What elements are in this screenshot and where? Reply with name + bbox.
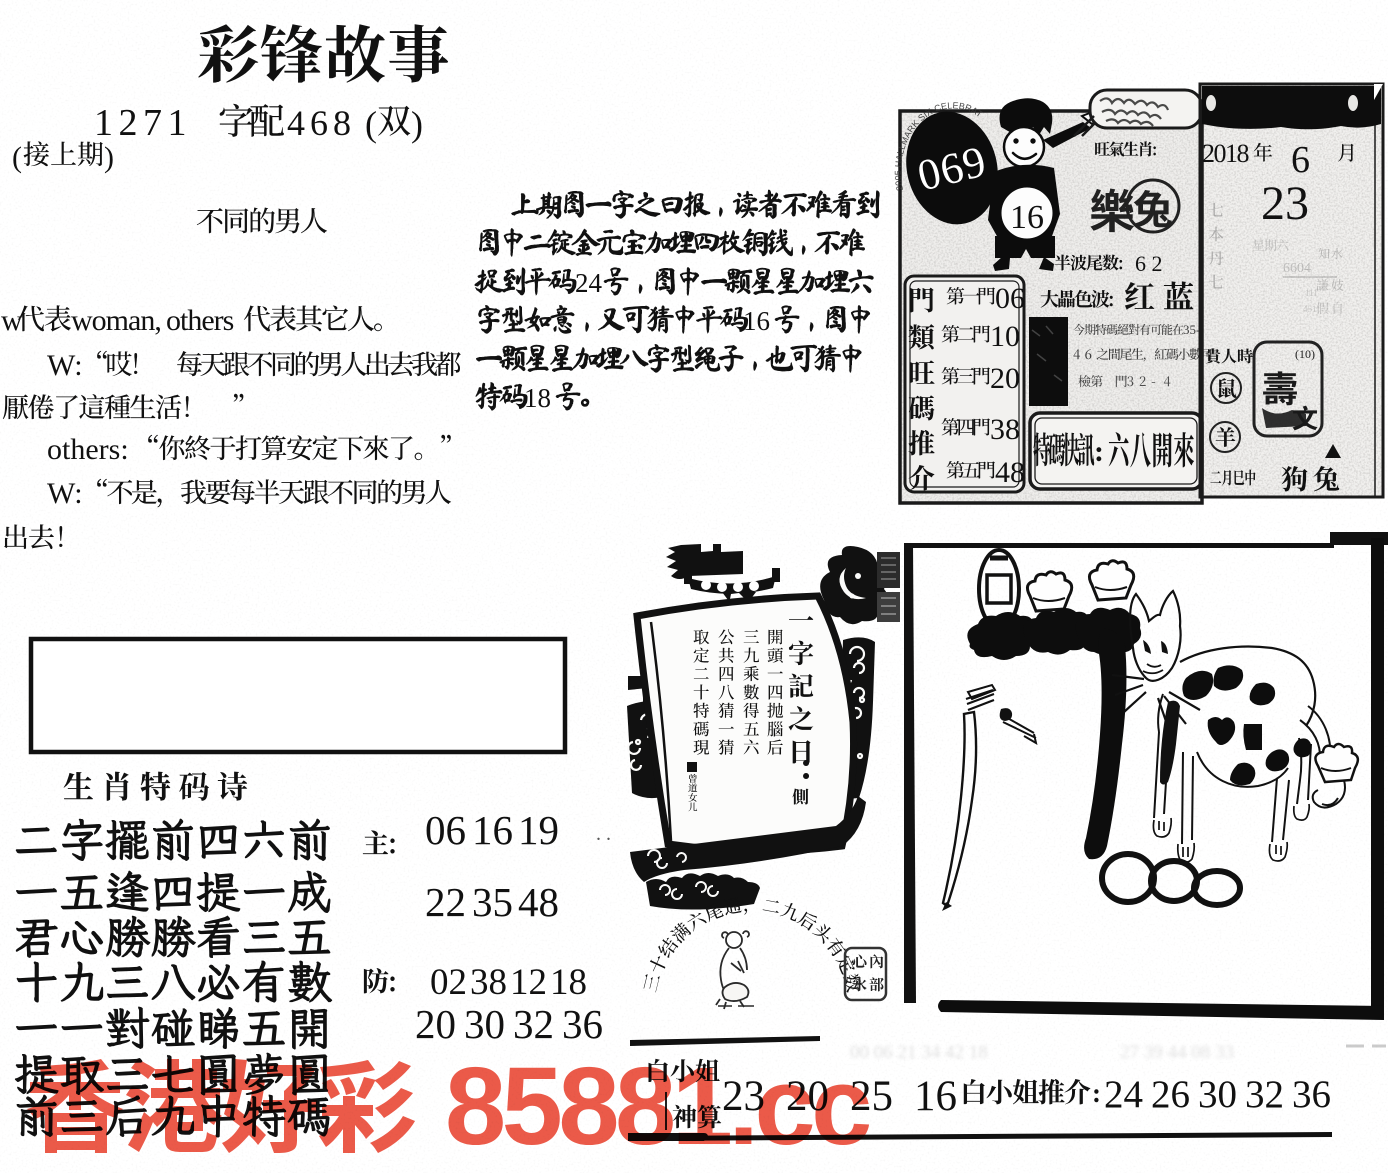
svg-text:00 06 21 34 42 18: 00 06 21 34 42 18 [850, 1042, 988, 1063]
svg-text:451: 451 [1303, 304, 1317, 314]
svg-text:24: 24 [1104, 1073, 1143, 1116]
svg-text:): ) [104, 141, 114, 174]
svg-text::: : [1094, 435, 1104, 468]
svg-text:16: 16 [914, 1073, 957, 1120]
svg-text:18: 18 [550, 962, 587, 1003]
svg-text:48: 48 [995, 456, 1025, 489]
svg-text:others:: others: [47, 433, 129, 466]
svg-text:20: 20 [415, 1001, 456, 1047]
svg-text:35-: 35- [1183, 322, 1200, 337]
svg-text:2018: 2018 [1202, 139, 1250, 168]
svg-text:W:: W: [47, 477, 83, 510]
svg-text:24: 24 [575, 268, 603, 298]
svg-text:30: 30 [464, 1001, 505, 1047]
svg-text:35: 35 [472, 879, 513, 925]
svg-text:16: 16 [472, 807, 513, 853]
svg-text:32: 32 [1245, 1073, 1284, 1116]
svg-text:18: 18 [524, 383, 551, 413]
svg-text:. .: . . [596, 823, 611, 845]
svg-text:(: ( [12, 141, 22, 174]
svg-text:06: 06 [425, 807, 466, 853]
svg-text:27 39 44 08 33: 27 39 44 08 33 [1120, 1042, 1234, 1063]
svg-text:30: 30 [1198, 1073, 1237, 1116]
svg-text:(10): (10) [1295, 347, 1315, 361]
svg-text:38: 38 [470, 962, 507, 1003]
svg-text:36: 36 [562, 1001, 603, 1047]
svg-text:02: 02 [430, 962, 467, 1003]
svg-text:6: 6 [1291, 139, 1310, 181]
svg-text::: : [1092, 1078, 1101, 1108]
svg-text:111: 111 [1305, 288, 1318, 298]
svg-text:12: 12 [510, 962, 547, 1003]
svg-text:6604: 6604 [1283, 261, 1311, 276]
svg-text:(: ( [365, 104, 377, 144]
svg-text:85881.cc: 85881.cc [445, 1045, 869, 1168]
svg-text:w: w [1, 304, 23, 337]
svg-text:48: 48 [518, 879, 559, 925]
svg-text:woman,: woman, [71, 304, 161, 337]
svg-text:1 2 7 1: 1 2 7 1 [94, 102, 185, 144]
svg-text:16: 16 [1010, 199, 1044, 236]
svg-text:10: 10 [990, 320, 1020, 353]
svg-text:W:: W: [47, 349, 83, 382]
svg-text:6 2: 6 2 [1135, 251, 1163, 276]
svg-text:38: 38 [990, 413, 1020, 446]
svg-text:32: 32 [513, 1001, 554, 1047]
svg-text:): ) [411, 104, 423, 144]
svg-text:16: 16 [743, 306, 770, 336]
svg-text:19: 19 [518, 807, 559, 853]
svg-text:26: 26 [1151, 1073, 1190, 1116]
svg-text:23: 23 [1261, 177, 1309, 230]
svg-text:06: 06 [995, 282, 1025, 315]
svg-text:22: 22 [425, 879, 466, 925]
svg-text:others: others [166, 304, 234, 337]
svg-text:20: 20 [990, 362, 1020, 395]
svg-text:4 6 8: 4 6 8 [287, 103, 350, 143]
svg-text:36: 36 [1292, 1073, 1331, 1116]
